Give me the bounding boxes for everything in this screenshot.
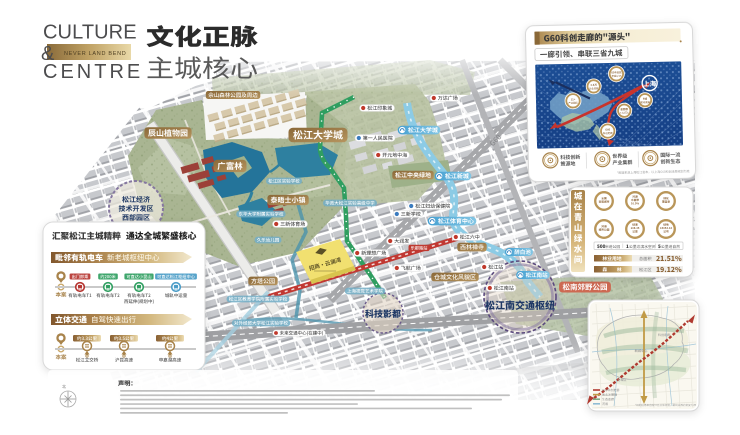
svg-text:CENTRE: CENTRE (43, 61, 143, 83)
svg-text:NEVER LAND BEND: NEVER LAND BEND (64, 51, 126, 57)
svg-text:CULTURE: CULTURE (43, 22, 137, 44)
